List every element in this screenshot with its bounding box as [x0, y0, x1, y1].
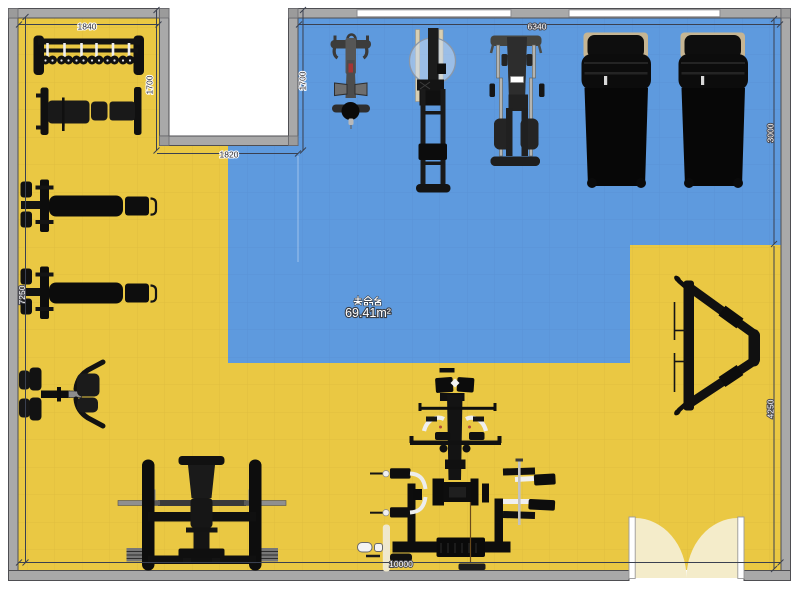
- svg-text:1820: 1820: [220, 150, 239, 160]
- svg-text:4250: 4250: [766, 399, 776, 418]
- svg-text:6340: 6340: [528, 22, 547, 32]
- svg-text:1840: 1840: [78, 22, 97, 32]
- svg-text:10000: 10000: [389, 559, 413, 569]
- svg-text:7250: 7250: [17, 285, 27, 304]
- svg-text:69.41m²: 69.41m²: [345, 306, 391, 320]
- svg-text:3000: 3000: [766, 123, 776, 142]
- svg-text:1700: 1700: [145, 75, 155, 94]
- svg-text:1700: 1700: [298, 71, 308, 90]
